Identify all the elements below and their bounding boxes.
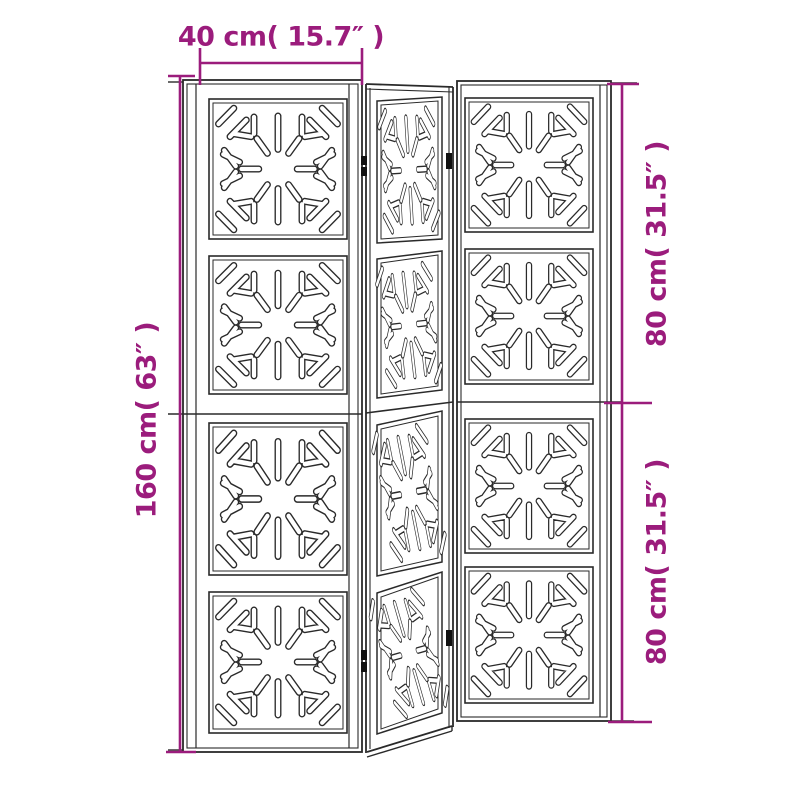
- right-panel-cutout-patterns: [474, 107, 584, 694]
- middle-panel-drawing: [361, 84, 453, 757]
- height-dimension-label: 160 cm( 63″ ): [132, 322, 163, 519]
- right-panel-drawing: [457, 81, 637, 721]
- panel-height-top-label: 80 cm( 31.5″ ): [642, 141, 673, 347]
- divider-line-drawing: [0, 0, 800, 800]
- mid-rail-line: [168, 402, 622, 414]
- panel-height-bottom-label: 80 cm( 31.5″ ): [642, 459, 673, 665]
- left-panel-drawing: [168, 80, 362, 752]
- left-panel-cutout-patterns: [218, 108, 337, 723]
- width-dimension-label: 40 cm( 15.7″ ): [178, 22, 384, 53]
- product-dimension-diagram: 40 cm( 15.7″ ) 160 cm( 63″ ) 80 cm( 31.5…: [0, 0, 800, 800]
- middle-panel-cutout-patterns: [366, 108, 451, 717]
